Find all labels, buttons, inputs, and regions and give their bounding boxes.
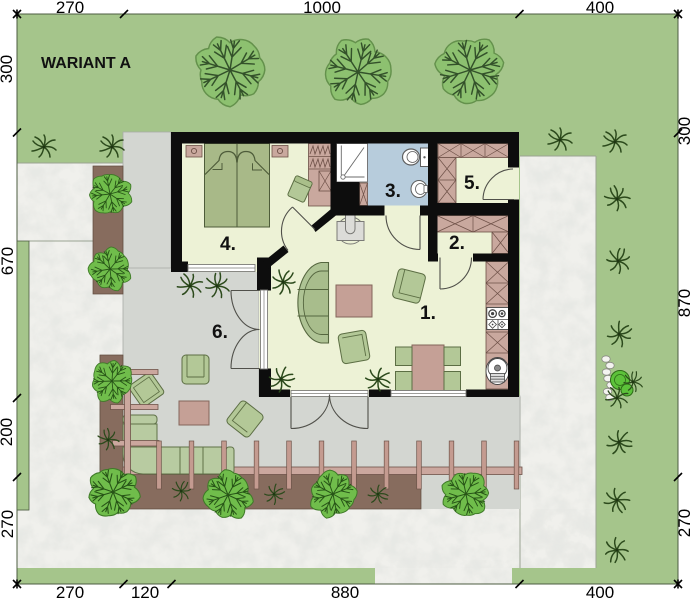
- svg-text:880: 880: [331, 583, 359, 600]
- svg-text:270: 270: [0, 510, 17, 538]
- svg-text:4.: 4.: [220, 234, 236, 255]
- svg-text:870: 870: [675, 289, 694, 317]
- svg-text:5.: 5.: [464, 173, 480, 194]
- svg-text:270: 270: [56, 583, 84, 600]
- svg-text:400: 400: [586, 0, 614, 17]
- svg-text:200: 200: [0, 418, 16, 446]
- svg-text:6.: 6.: [212, 322, 228, 343]
- svg-text:270: 270: [675, 509, 694, 537]
- svg-text:400: 400: [586, 583, 614, 600]
- svg-text:270: 270: [56, 0, 84, 17]
- svg-text:1.: 1.: [420, 303, 436, 324]
- svg-text:1000: 1000: [303, 0, 341, 17]
- svg-text:WARIANT A: WARIANT A: [41, 55, 132, 72]
- svg-text:2.: 2.: [449, 233, 465, 254]
- svg-text:3.: 3.: [385, 181, 401, 202]
- svg-text:670: 670: [0, 247, 17, 275]
- svg-text:120: 120: [131, 583, 159, 600]
- svg-text:300: 300: [675, 117, 694, 145]
- svg-text:300: 300: [0, 55, 16, 83]
